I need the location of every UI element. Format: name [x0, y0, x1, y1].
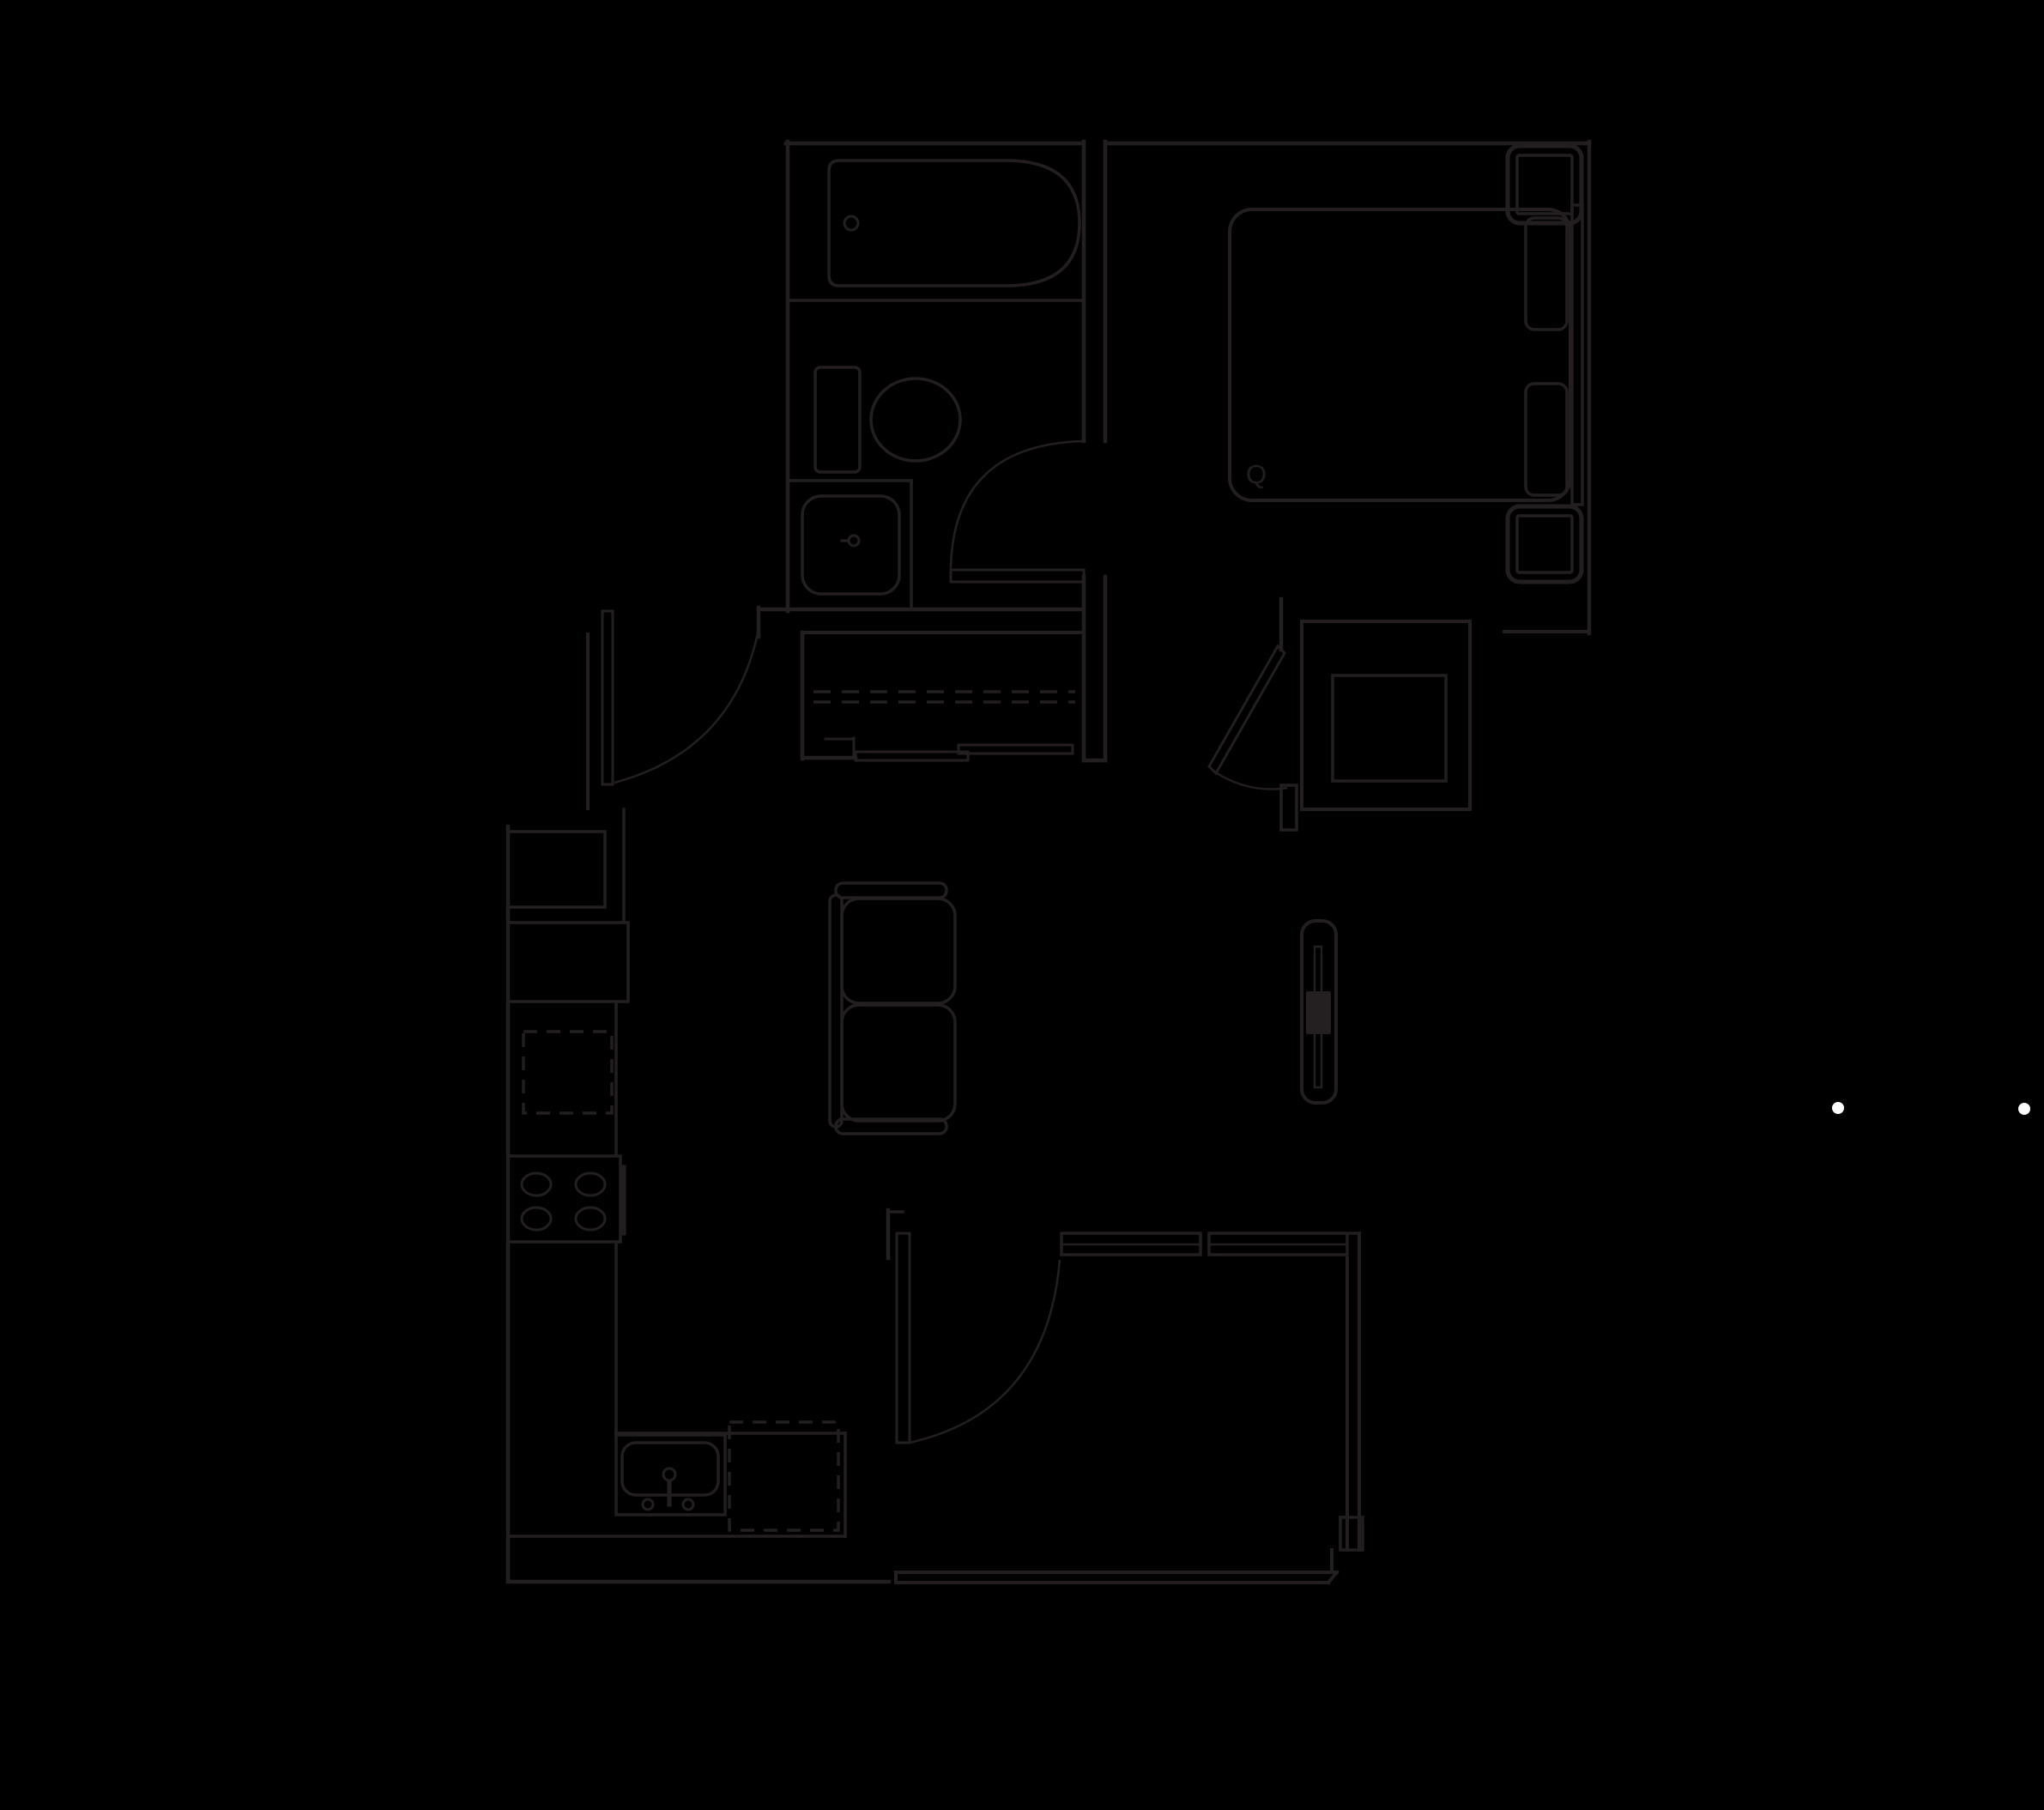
burner-3 [522, 1208, 551, 1230]
closet-slider-rear [959, 745, 1073, 754]
tub-drain [844, 216, 858, 230]
refrigerator [508, 923, 628, 1002]
toilet-tank [815, 367, 860, 472]
bedroom-door-leaf [1209, 646, 1285, 773]
pillow-2 [1526, 384, 1567, 495]
carousel-dot-1[interactable] [1832, 1102, 1844, 1114]
pantry-cabinet [508, 832, 605, 907]
dresser-inner [1333, 675, 1446, 781]
balcony-door-arc [910, 1260, 1060, 1443]
burner-1 [522, 1173, 551, 1196]
nightstand-2-inner [1517, 516, 1572, 572]
dishwasher-lower [729, 1422, 838, 1530]
tv-mount [1306, 991, 1331, 1034]
bedroom-door-arc [1214, 772, 1287, 789]
carousel-dot-2[interactable] [2018, 1103, 2030, 1115]
nightstand-1 [1508, 146, 1581, 223]
entry-door-arc [614, 629, 759, 783]
sofa-cushion-1 [842, 899, 955, 1003]
headboard [1572, 205, 1582, 505]
sofa-back [830, 895, 842, 1127]
sofa-arm-top [836, 883, 946, 898]
kitchen-knob-right [683, 1499, 693, 1510]
bath-faucet [849, 536, 859, 546]
bed [1230, 209, 1570, 500]
burner-2 [576, 1173, 605, 1196]
stove [508, 1156, 620, 1242]
toilet-bowl [871, 378, 960, 461]
bed-size-label: Q [1246, 459, 1267, 489]
floor-plan-viewer: Q [0, 0, 2044, 1810]
bedroom-door-stub [1281, 785, 1297, 830]
pillow-1 [1526, 218, 1567, 330]
kitchen-faucet [663, 1468, 675, 1480]
sofa-cushion-2 [842, 1005, 955, 1121]
dishwasher-upper [523, 1032, 612, 1113]
burner-4 [576, 1208, 605, 1230]
kitchen-knob-left [643, 1499, 653, 1510]
bath-door-leaf [951, 570, 1084, 582]
floor-plan: Q [0, 0, 2044, 1810]
entry-door-leaf [602, 611, 613, 784]
nightstand-1-inner [1517, 155, 1572, 214]
balcony-door-leaf [897, 1233, 910, 1443]
bathtub [829, 160, 1079, 286]
closet-slider-front [856, 752, 968, 760]
bath-door-arc [951, 441, 1084, 570]
nightstand-2 [1508, 506, 1581, 582]
